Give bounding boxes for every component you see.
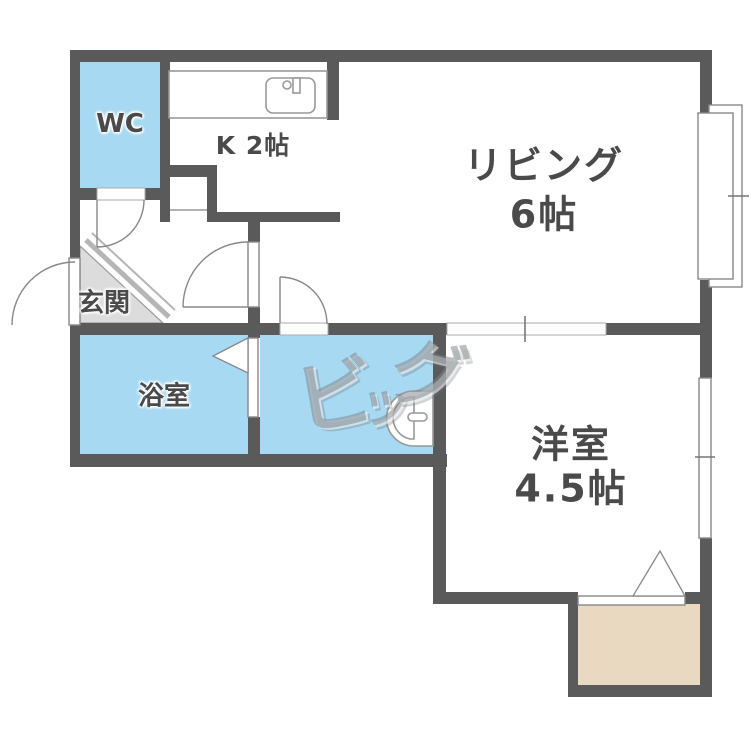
western-room-size-label: 4.5帖 (514, 458, 627, 513)
entry-door-arc (12, 258, 80, 325)
western-room-window (695, 378, 715, 538)
kitchen-sink-icon (169, 71, 327, 118)
closet-front (578, 596, 685, 605)
bath-folding-door (213, 338, 258, 417)
wc-label: WC (96, 109, 144, 139)
bathroom-label: 浴室 (138, 376, 190, 413)
entrance-label: 玄関 (78, 283, 130, 320)
toilet-icon (387, 391, 434, 446)
washroom-door-arc (280, 277, 327, 324)
living-label: リビング (464, 135, 624, 190)
living-size-label: 6帖 (510, 184, 578, 239)
floorplan: ビ ッ グ (0, 0, 750, 750)
kitchen-label: K 2帖 (216, 126, 290, 162)
wc-door-arc (97, 200, 144, 247)
living-window (698, 105, 749, 287)
hall-door-arc (183, 242, 259, 307)
closet-triangle-marker (633, 551, 685, 596)
